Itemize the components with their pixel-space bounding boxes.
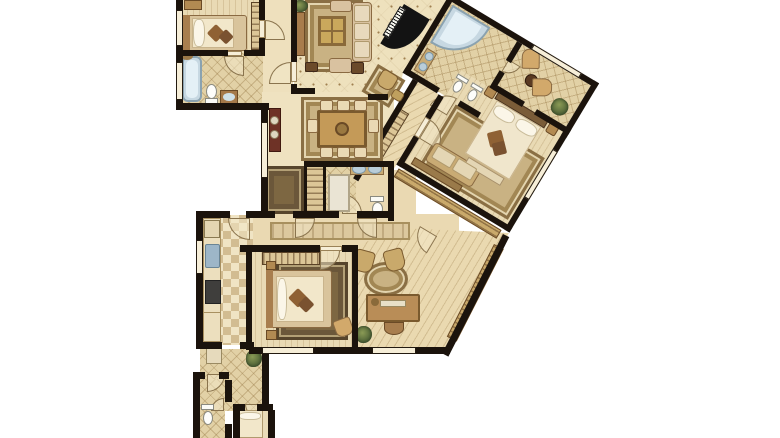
wall-maid-north-a [233,404,245,411]
dining-chair-n1 [320,100,333,111]
kitchen-fridge [204,220,220,238]
desk-chair-study [384,322,404,335]
desk-blotter [380,300,406,307]
wall-kitchen-south-b [240,342,254,349]
dining-centerpiece [335,122,349,136]
wall-kitchen-north-b [246,211,262,218]
wall-wc-east-a [225,380,232,402]
dining-chair-s3 [354,147,367,158]
door-leaf-bedroom2 [320,246,342,251]
rug-dining-2 [264,166,304,214]
bed2-headboard [266,270,273,328]
wall-bedroom3-south-b [244,50,265,56]
nightstand-bed2-1 [266,261,276,270]
armchair-living-top [330,0,352,12]
cabinet-hall-lower [206,348,222,364]
bed3-headboard [183,15,190,51]
window-bath2 [176,62,183,100]
dining-chair-w [307,119,318,133]
dining-chair-n2 [337,100,350,111]
window-bedroom2 [262,347,314,354]
toilet-bath2-bowl [206,84,217,99]
dressing-chair-2 [532,78,552,96]
floor-plan [0,0,780,438]
door-leaf-living [291,60,297,82]
wall-bath2-south [176,103,269,110]
console-living [296,12,305,56]
pillow-maid [239,412,261,420]
wall-kitchen-south-a [196,342,222,349]
side-table-living-1 [351,62,364,74]
wall-hall-living-a [291,0,297,62]
window-kitchen [196,240,203,274]
wall-corridor-north-b [293,211,339,218]
window-dining [261,122,268,178]
plant-study [356,326,372,343]
armchair-living-bottom [329,58,352,73]
wall-corridor-south-a [240,245,320,252]
plate-dining-2 [270,130,279,139]
dresser-bedroom3 [184,0,202,10]
wall-bedroom3-south-a [176,50,228,56]
wall-maid-east [268,410,275,438]
sofa-living-cushion-1 [354,5,370,22]
rug-corridor-runner [270,222,410,240]
wall-bedroom3-east-a [259,0,265,20]
dining-chair-e [368,119,379,133]
wall-wc-north-b [219,372,229,379]
wall-hall-lower-east [262,350,269,404]
wall-kitchen-bedroom2 [246,245,252,350]
sofa-living-cushion-3 [354,41,370,58]
wall-wc-east-b [225,424,232,438]
closet-hall [304,163,326,215]
kitchen-stove [205,280,221,304]
door-leaf-bedroom3 [259,20,265,38]
wall-kitchen-west [196,211,203,347]
wall-living-dining-stub-e [368,94,388,100]
plate-dining-1 [270,116,279,125]
basin-bath2 [223,93,235,101]
shower-bath3 [328,174,350,212]
side-table-living-2 [305,62,318,72]
dining-chair-s2 [337,147,350,158]
desk-lamp [371,298,379,306]
window-bedroom3 [176,10,183,46]
floor-corridor-west [251,214,265,248]
wall-bedroom2-study [352,245,358,350]
wall-living-dining-stub-w [291,88,315,94]
wall-bath3-north [304,161,392,167]
coffee-table-living [318,16,346,46]
bathtub-bath2-inner [186,60,198,98]
wall-corridor-north-c [357,211,391,218]
toilet-bath3-tank [370,196,384,202]
toilet-wc-bowl [203,411,213,425]
wall-wc-west [193,372,200,438]
bed3-pillow [193,19,205,47]
kitchen-sink [205,244,220,268]
dining-chair-n3 [354,100,367,111]
wall-wc-north-a [193,372,205,379]
window-study [372,347,416,354]
kitchen-counter-lower [203,312,221,342]
door-leaf-bath2 [226,51,242,56]
nightstand-bed2-2 [266,330,277,340]
sofa-living-cushion-2 [354,23,370,40]
wall-corridor-north-a [261,211,275,218]
toilet-wc-tank [201,404,214,410]
bed2-pillow [277,278,287,320]
dining-chair-s1 [320,147,333,158]
